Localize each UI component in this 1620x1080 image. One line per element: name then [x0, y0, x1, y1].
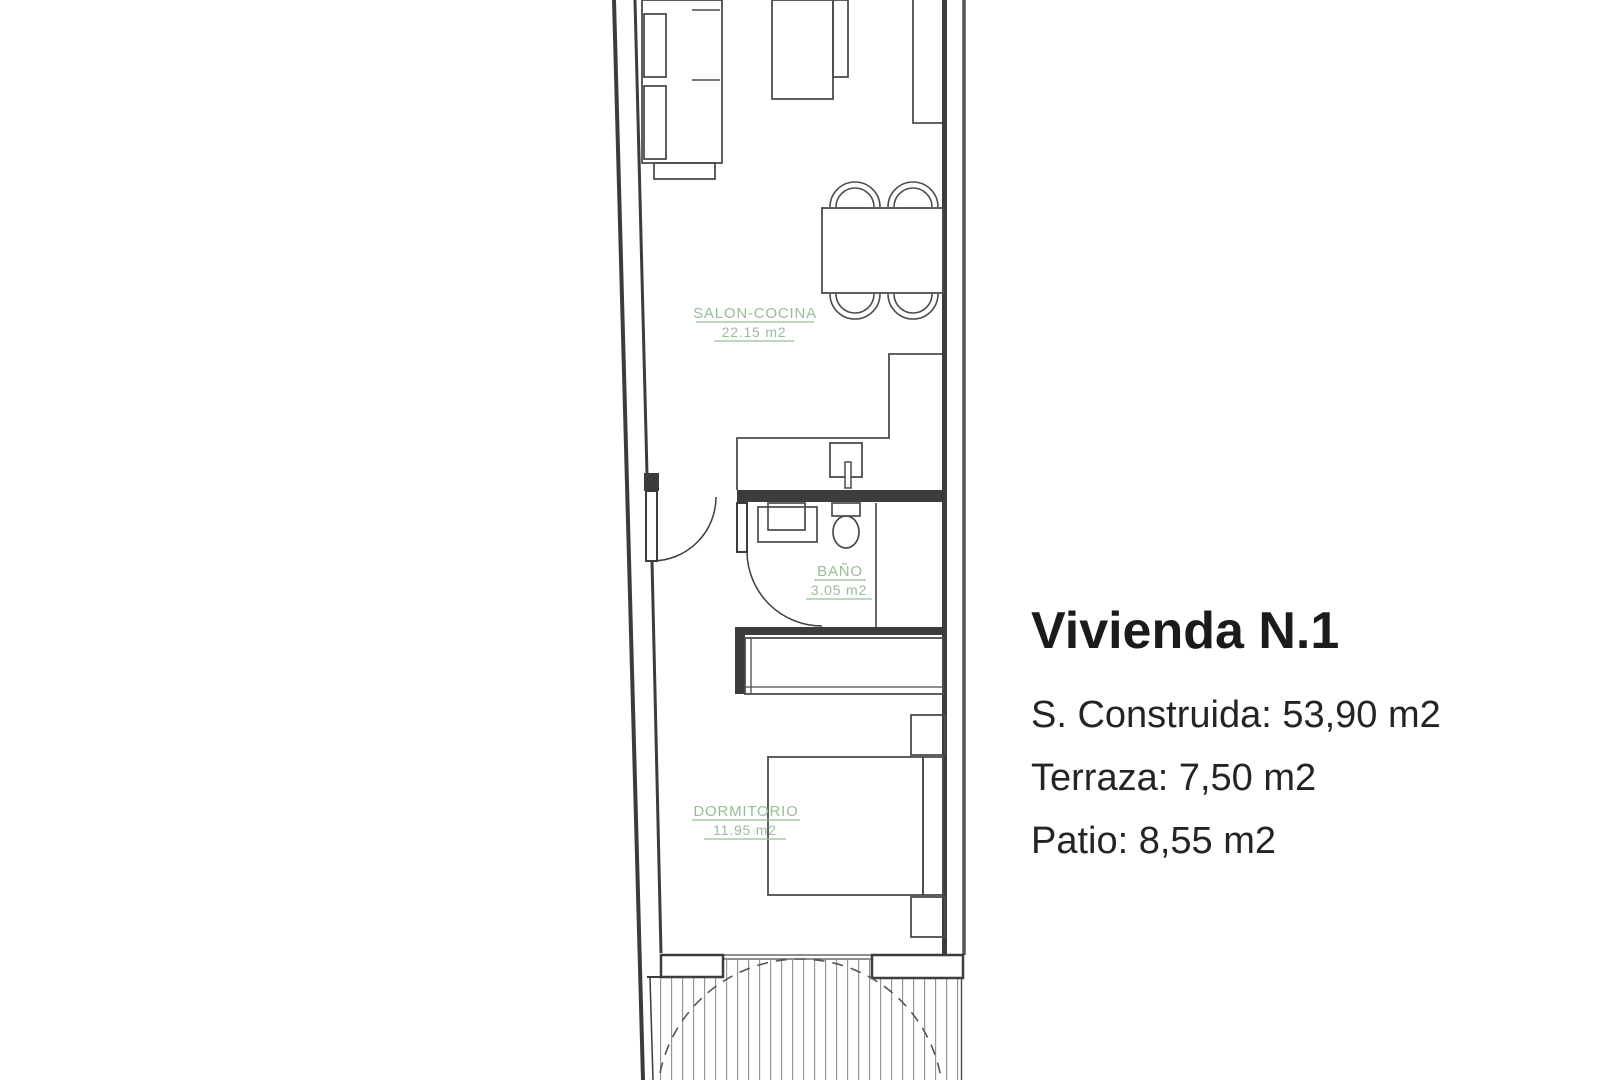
kitchen-counter	[737, 354, 942, 490]
bedroom-furniture	[745, 638, 945, 937]
dining-chairs	[830, 182, 938, 319]
entry-door-leaf	[646, 491, 657, 561]
terrace-decking-door-strip	[723, 960, 872, 978]
unit-info-panel: Vivienda N.1 S. Construida: 53,90 m2 Ter…	[1031, 602, 1591, 873]
entry-door-swing-arc	[652, 497, 716, 561]
dormitorio-name: DORMITORIO	[693, 803, 798, 820]
kitchen-island	[772, 0, 848, 99]
bath-sink	[758, 503, 817, 542]
bottom-wall-right	[872, 955, 963, 978]
floor-plan-drawing: SALON-COCINA 22.15 m2 BAÑO 3.05 m2 DORMI…	[0, 0, 1620, 1080]
left-inner-wall-upper	[635, 0, 647, 474]
terrace-left-edge	[650, 978, 653, 1080]
left-inner-wall-lower	[652, 561, 661, 953]
bath-door-leaf	[737, 503, 747, 552]
terrace	[647, 955, 963, 1080]
dining-table	[822, 208, 943, 293]
nightstand-top	[911, 715, 945, 755]
salon-cocina-area: 22.15 m2	[722, 324, 787, 340]
toilet	[832, 503, 860, 548]
salon-bath-wall	[737, 490, 947, 502]
kitchen-sink	[830, 443, 862, 488]
terrace-decking	[653, 978, 961, 1080]
bath-bedroom-wall	[735, 627, 947, 635]
kitchen-counter-top-right	[913, 0, 942, 123]
bano-name: BAÑO	[817, 563, 863, 580]
bano-area: 3.05 m2	[811, 582, 867, 598]
salon-cocina-name: SALON-COCINA	[693, 305, 817, 322]
room-labels: SALON-COCINA 22.15 m2 BAÑO 3.05 m2 DORMI…	[692, 305, 872, 839]
entry-door-jamb	[644, 473, 659, 491]
floor-plan-page: SALON-COCINA 22.15 m2 BAÑO 3.05 m2 DORMI…	[0, 0, 1620, 1080]
bano-label: BAÑO 3.05 m2	[806, 563, 872, 599]
salon-cocina-label: SALON-COCINA 22.15 m2	[693, 305, 817, 341]
built-area-line: S. Construida: 53,90 m2	[1031, 684, 1591, 747]
dormitorio-label: DORMITORIO 11.95 m2	[692, 803, 800, 839]
wardrobe-stub-wall	[735, 627, 745, 694]
nightstand-bottom	[911, 897, 945, 937]
salon-furniture	[642, 0, 943, 490]
sofa	[642, 0, 722, 179]
interior-walls	[644, 473, 947, 694]
unit-title: Vivienda N.1	[1031, 602, 1591, 660]
doors	[646, 491, 822, 626]
terrace-area-line: Terraza: 7,50 m2	[1031, 747, 1591, 810]
bottom-wall-left	[661, 955, 723, 977]
bed	[768, 757, 943, 895]
patio-area-line: Patio: 8,55 m2	[1031, 810, 1591, 873]
dormitorio-area: 11.95 m2	[713, 822, 777, 838]
wardrobe	[745, 638, 943, 694]
